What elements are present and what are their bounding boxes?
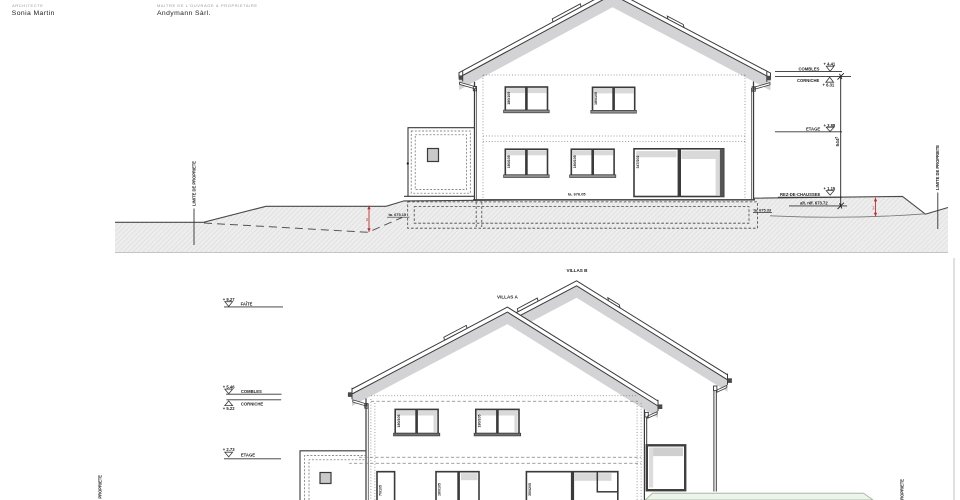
svg-text:+ 5.22: + 5.22 <box>223 406 235 411</box>
svg-text:+ 4.41: + 4.41 <box>824 61 836 66</box>
svg-text:Sonia Martin: Sonia Martin <box>12 10 55 17</box>
svg-text:LIMITE DE PROPRIETE: LIMITE DE PROPRIETE <box>191 161 196 206</box>
svg-text:REZ-DE-CHAUSSEE: REZ-DE-CHAUSSEE <box>780 192 820 197</box>
svg-text:LIMITE DE PROPRIETE: LIMITE DE PROPRIETE <box>900 479 905 500</box>
svg-text:+ 5.46: + 5.46 <box>223 384 235 389</box>
svg-text:MAITRE DE L'OUVRAGE & PROPRIET: MAITRE DE L'OUVRAGE & PROPRIETAIRE <box>157 3 258 8</box>
svg-text:LIMITE DE PROPRIETE: LIMITE DE PROPRIETE <box>935 145 940 190</box>
svg-text:350/205: 350/205 <box>528 483 532 496</box>
svg-text:180/105: 180/105 <box>594 92 598 105</box>
svg-text:LIMITE DE PROPRIETE: LIMITE DE PROPRIETE <box>98 475 103 500</box>
svg-text:ta. 676.05: ta. 676.05 <box>568 191 586 196</box>
svg-text:COMBLES: COMBLES <box>241 389 262 394</box>
svg-text:+ 1.15: + 1.15 <box>824 186 836 191</box>
svg-text:347/202: 347/202 <box>636 156 640 169</box>
svg-text:COMBLES: COMBLES <box>799 66 820 71</box>
svg-text:180/105: 180/105 <box>477 415 481 428</box>
svg-text:+ 6.31: + 6.31 <box>823 83 835 88</box>
svg-text:VILLAS A: VILLAS A <box>497 294 518 299</box>
svg-text:54: 54 <box>871 206 875 210</box>
svg-text:180/105: 180/105 <box>507 92 511 105</box>
svg-text:CORNICHE: CORNICHE <box>797 78 820 83</box>
svg-text:180/105: 180/105 <box>438 483 442 496</box>
svg-text:ARCHITECTE: ARCHITECTE <box>12 3 44 8</box>
svg-text:ta. 675.33: ta. 675.33 <box>754 207 772 212</box>
svg-text:ETAGE: ETAGE <box>241 453 255 458</box>
svg-text:ta. 675.15: ta. 675.15 <box>389 212 407 217</box>
svg-text:alt. réf. 673.72: alt. réf. 673.72 <box>800 200 828 205</box>
svg-text:70/105: 70/105 <box>379 485 383 496</box>
svg-text:Andymann Sàrl.: Andymann Sàrl. <box>157 10 211 17</box>
svg-text:CORNICHE: CORNICHE <box>241 401 264 406</box>
svg-text:VILLAS B: VILLAS B <box>567 268 589 273</box>
svg-text:ETAGE: ETAGE <box>806 127 820 132</box>
svg-text:180/105: 180/105 <box>573 155 577 168</box>
svg-text:180/105: 180/105 <box>397 415 401 428</box>
svg-text:+ 9.27: + 9.27 <box>223 297 235 302</box>
svg-text:96: 96 <box>365 218 369 222</box>
svg-text:FAÎTE: FAÎTE <box>241 301 253 306</box>
svg-text:180/105: 180/105 <box>507 155 511 168</box>
svg-text:+ 2.73: + 2.73 <box>223 447 235 452</box>
